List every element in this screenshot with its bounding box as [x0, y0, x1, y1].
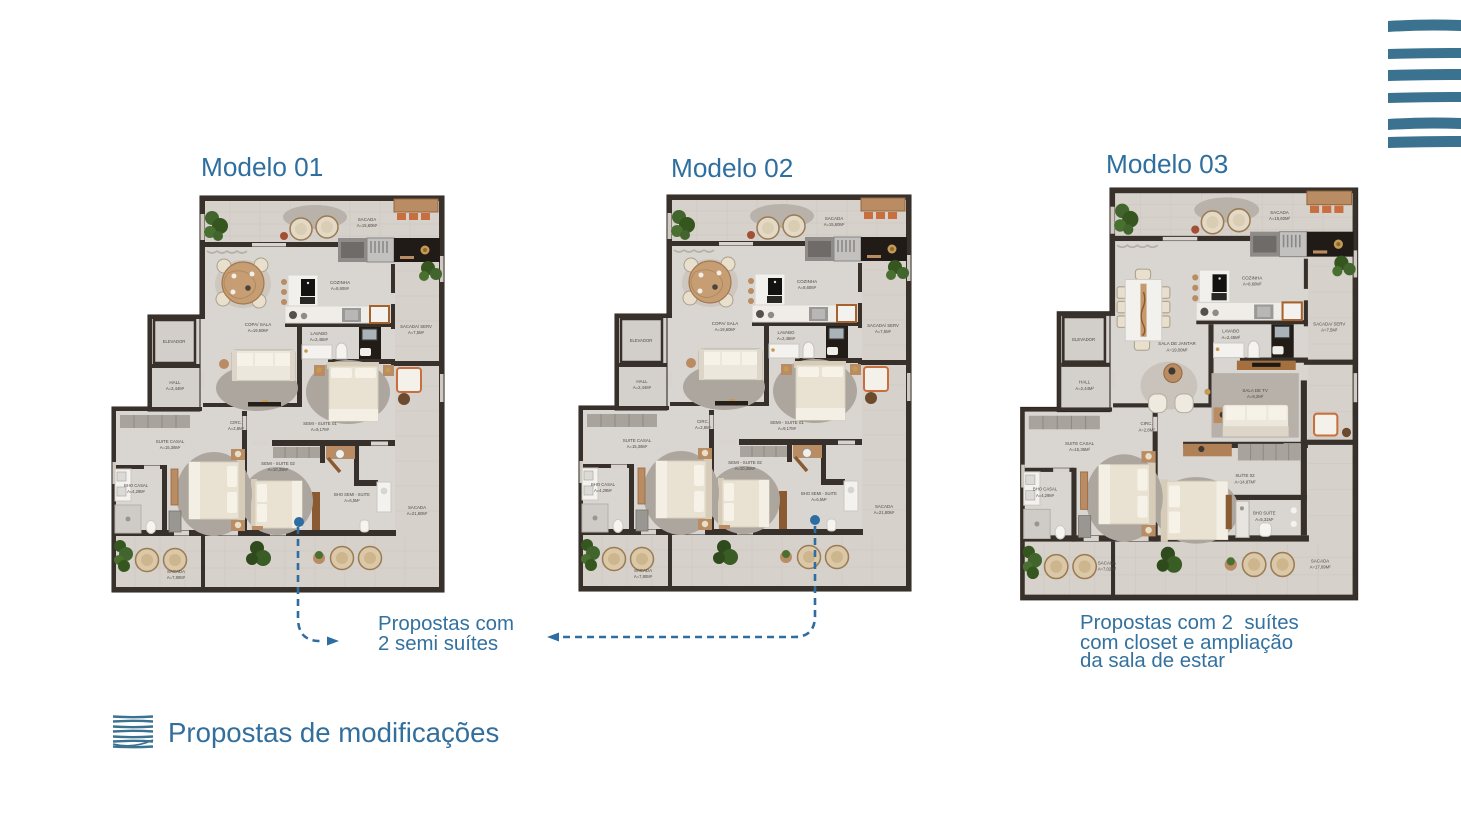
svg-text:BHO CASAL: BHO CASAL [124, 483, 149, 488]
svg-text:A=8,60M²: A=8,60M² [1243, 282, 1262, 287]
svg-text:A=7,80M²: A=7,80M² [167, 575, 186, 580]
svg-text:HALL: HALL [1079, 379, 1091, 384]
svg-text:A=10,35M²: A=10,35M² [735, 466, 756, 471]
svg-text:A=15,60M²: A=15,60M² [357, 223, 378, 228]
svg-text:COZINHA: COZINHA [797, 279, 817, 284]
svg-text:COPA/ SALA: COPA/ SALA [712, 321, 738, 326]
svg-text:SUITE CASAL: SUITE CASAL [623, 438, 652, 443]
svg-text:A=17,09M²: A=17,09M² [1310, 565, 1331, 570]
svg-text:SACADA: SACADA [1270, 210, 1290, 215]
svg-text:A=21,80M²: A=21,80M² [874, 510, 895, 515]
svg-text:SACADA: SACADA [358, 217, 377, 222]
svg-text:A=5,31M²: A=5,31M² [1255, 517, 1274, 522]
svg-text:A=14,87M²: A=14,87M² [1235, 479, 1256, 484]
svg-text:CIRC.: CIRC. [697, 419, 709, 424]
svg-text:SACADA/ SERV: SACADA/ SERV [400, 324, 432, 329]
svg-text:SEMI - SUITE 02: SEMI - SUITE 02 [261, 461, 295, 466]
svg-text:SACADA: SACADA [825, 216, 844, 221]
svg-text:SEMI - SUITE 02: SEMI - SUITE 02 [728, 460, 762, 465]
svg-text:A=9,2M²: A=9,2M² [1247, 394, 1264, 399]
svg-text:HALL: HALL [636, 379, 648, 384]
svg-text:Propostas com 2 suítes: Propostas com 2 suítes [1080, 612, 1299, 634]
svg-text:A=2,44M²: A=2,44M² [1075, 386, 1094, 391]
svg-text:Modelo 03: Modelo 03 [1106, 149, 1228, 179]
svg-text:CIRC.: CIRC. [230, 420, 242, 425]
svg-text:A=15,60M²: A=15,60M² [1269, 216, 1290, 221]
svg-text:A=2,8M²: A=2,8M² [695, 425, 712, 430]
svg-text:HALL: HALL [169, 380, 181, 385]
svg-text:A=6,5M²: A=6,5M² [344, 498, 360, 503]
svg-text:A=8,60M²: A=8,60M² [798, 285, 817, 290]
svg-text:SALA DE TV: SALA DE TV [1242, 388, 1267, 393]
svg-text:A=19,00M²: A=19,00M² [1167, 347, 1188, 352]
svg-text:BHO CASAL: BHO CASAL [591, 482, 616, 487]
svg-text:A=21,80M²: A=21,80M² [407, 511, 428, 516]
svg-text:SACADA: SACADA [875, 504, 893, 509]
svg-text:A=7,02M²: A=7,02M² [1098, 567, 1117, 572]
svg-text:SUITE CASAL: SUITE CASAL [156, 439, 185, 444]
svg-text:A=9,17M²: A=9,17M² [311, 427, 330, 432]
svg-text:SACADA/ SERV: SACADA/ SERV [1313, 321, 1345, 326]
svg-text:da sala de estar: da sala de estar [1080, 650, 1225, 672]
svg-text:SUÍTE 02: SUÍTE 02 [1235, 472, 1255, 478]
svg-text:A=6,5M²: A=6,5M² [811, 497, 827, 502]
svg-text:LAVABO: LAVABO [1222, 329, 1240, 334]
svg-text:Modelo 01: Modelo 01 [201, 152, 323, 182]
svg-text:ELEVADOR: ELEVADOR [163, 339, 186, 344]
svg-text:A=2,45M²: A=2,45M² [777, 336, 796, 341]
svg-text:A=15,36M²: A=15,36M² [1069, 447, 1090, 452]
svg-text:BHO SUÍTE: BHO SUÍTE [1253, 511, 1276, 516]
svg-text:A=7,5M²: A=7,5M² [875, 329, 892, 334]
svg-text:BHO SEMI - SUITE: BHO SEMI - SUITE [334, 492, 370, 497]
svg-text:SACADA: SACADA [408, 505, 426, 510]
svg-text:A=7,80M²: A=7,80M² [634, 574, 653, 579]
svg-text:Propostas de modificações: Propostas de modificações [168, 717, 499, 748]
svg-text:A=2,45M²: A=2,45M² [310, 337, 329, 342]
svg-text:A=19,60M²: A=19,60M² [715, 327, 736, 332]
svg-text:A=8,60M²: A=8,60M² [331, 286, 350, 291]
svg-text:COPA/ SALA: COPA/ SALA [245, 322, 271, 327]
svg-text:ELEVADOR: ELEVADOR [1072, 337, 1095, 342]
svg-text:SALA DE JANTAR: SALA DE JANTAR [1158, 341, 1196, 346]
svg-text:SUITE CASAL: SUITE CASAL [1065, 441, 1094, 446]
svg-text:A=4,29M²: A=4,29M² [594, 488, 612, 493]
svg-text:A=2,44M²: A=2,44M² [633, 385, 652, 390]
svg-text:SACADA: SACADA [1311, 558, 1329, 563]
svg-text:A=9,17M²: A=9,17M² [778, 426, 797, 431]
svg-text:A=19,60M²: A=19,60M² [248, 328, 269, 333]
svg-text:Propostas com: Propostas com [378, 613, 514, 635]
svg-text:SACADA: SACADA [634, 568, 652, 573]
svg-text:A=15,36M²: A=15,36M² [160, 445, 181, 450]
svg-text:CIRC.: CIRC. [1140, 421, 1152, 426]
svg-text:A=7,5M²: A=7,5M² [408, 330, 425, 335]
svg-text:LAVABO: LAVABO [311, 331, 329, 336]
svg-text:COZINHA: COZINHA [1242, 275, 1263, 280]
svg-text:A=15,60M²: A=15,60M² [824, 222, 845, 227]
svg-text:Modelo 02: Modelo 02 [671, 153, 793, 183]
svg-text:A=4,29M²: A=4,29M² [1036, 493, 1055, 498]
svg-text:A=7,5M²: A=7,5M² [1321, 327, 1338, 332]
svg-text:BHO SEMI - SUITE: BHO SEMI - SUITE [801, 491, 837, 496]
svg-text:SACADA: SACADA [1098, 560, 1116, 565]
svg-text:SEMI - SUITE 01: SEMI - SUITE 01 [303, 421, 337, 426]
svg-text:A=2,8M²: A=2,8M² [1138, 427, 1155, 432]
svg-text:A=2,8M²: A=2,8M² [228, 426, 245, 431]
svg-text:ELEVADOR: ELEVADOR [630, 338, 653, 343]
svg-text:A=15,36M²: A=15,36M² [627, 444, 648, 449]
svg-text:2 semi suítes: 2 semi suítes [378, 633, 498, 655]
svg-text:A=10,35M²: A=10,35M² [268, 467, 289, 472]
svg-text:BHO CASAL: BHO CASAL [1033, 487, 1058, 492]
svg-text:A=2,44M²: A=2,44M² [166, 386, 185, 391]
svg-text:A=4,29M²: A=4,29M² [127, 489, 145, 494]
svg-text:SACADA/ SERV: SACADA/ SERV [867, 323, 899, 328]
svg-text:SEMI - SUITE 01: SEMI - SUITE 01 [770, 420, 804, 425]
svg-text:SACADA: SACADA [167, 569, 185, 574]
svg-text:LAVABO: LAVABO [778, 330, 796, 335]
svg-text:COZINHA: COZINHA [330, 280, 350, 285]
svg-text:A=2,45M²: A=2,45M² [1222, 335, 1241, 340]
